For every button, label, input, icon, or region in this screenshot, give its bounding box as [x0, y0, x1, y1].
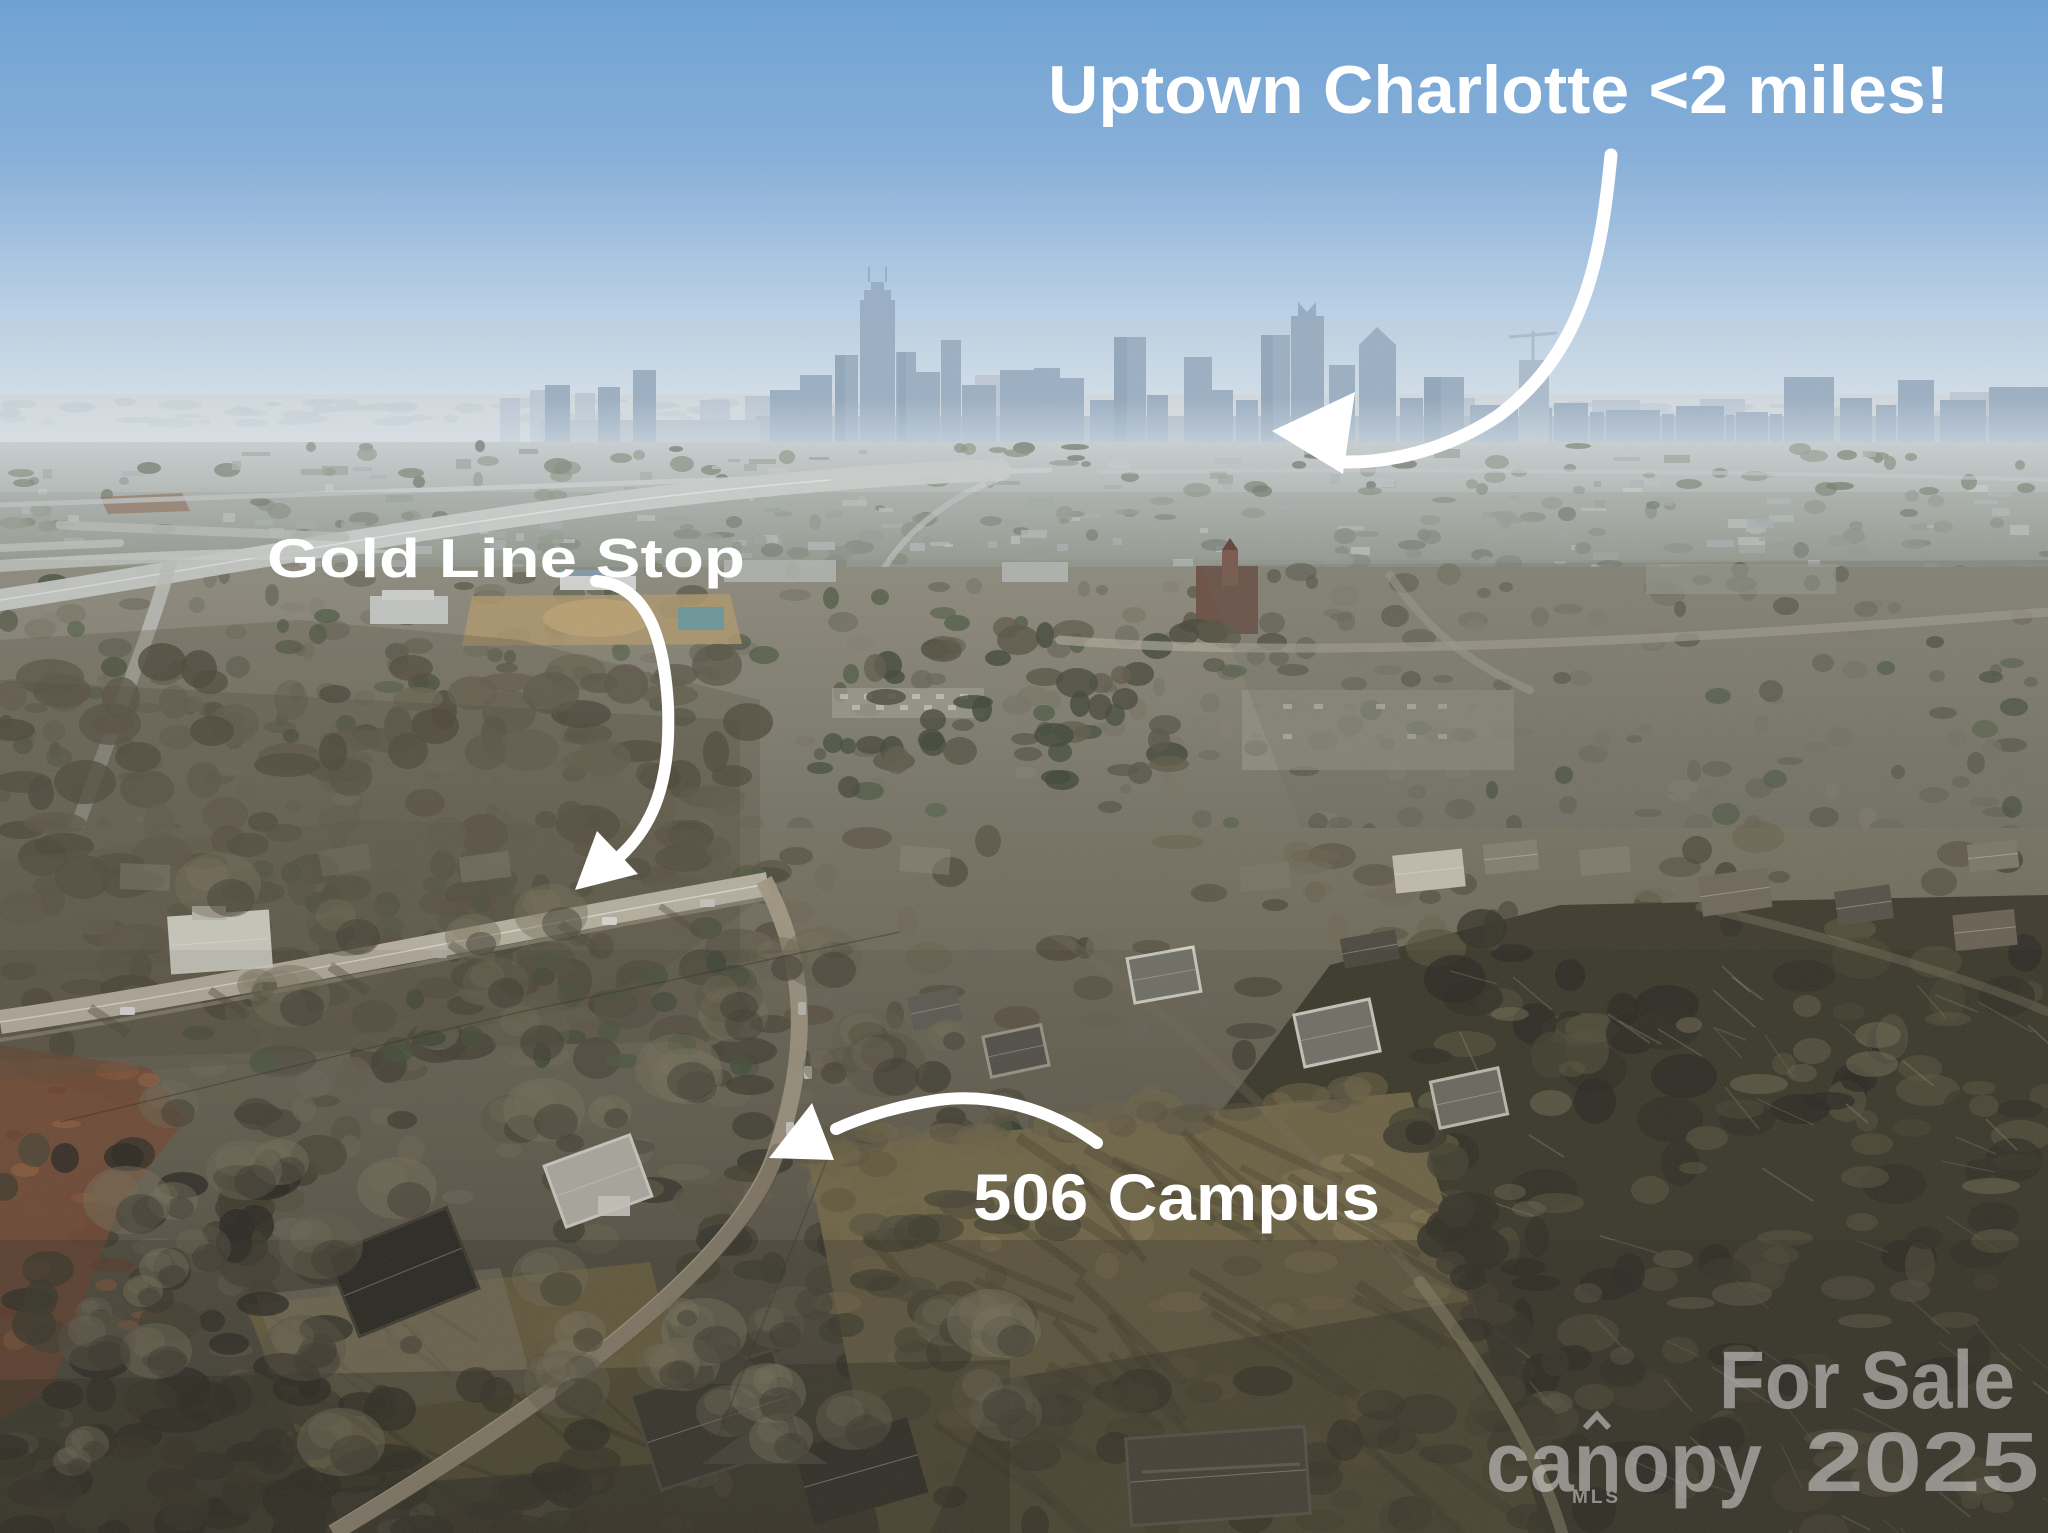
- svg-text:canopy: canopy: [1486, 1415, 1762, 1509]
- svg-text:Gold Line Stop: Gold Line Stop: [267, 527, 745, 589]
- svg-text:506 Campus: 506 Campus: [973, 1160, 1380, 1234]
- svg-text:For Sale: For Sale: [1719, 1335, 2015, 1426]
- svg-text:2025: 2025: [1805, 1415, 2039, 1509]
- svg-text:MLS: MLS: [1572, 1487, 1621, 1508]
- svg-text:Uptown Charlotte <2 miles!: Uptown Charlotte <2 miles!: [1048, 52, 1949, 128]
